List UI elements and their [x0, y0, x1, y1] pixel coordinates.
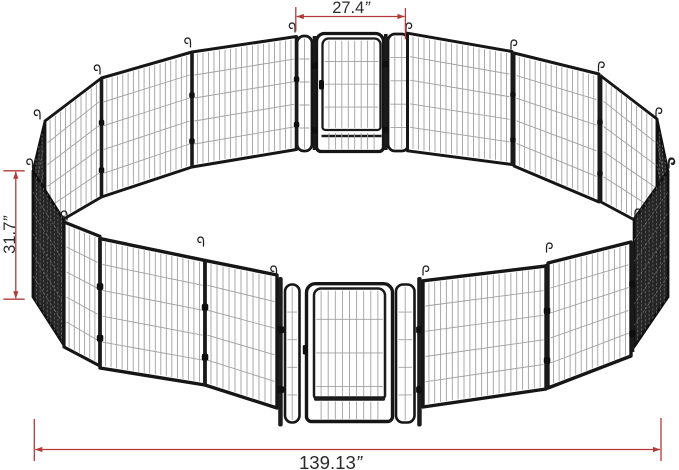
svg-text:31.7”: 31.7” [1, 215, 19, 254]
svg-text:139.13”: 139.13” [299, 452, 363, 470]
svg-text:27.4”: 27.4” [332, 0, 371, 17]
